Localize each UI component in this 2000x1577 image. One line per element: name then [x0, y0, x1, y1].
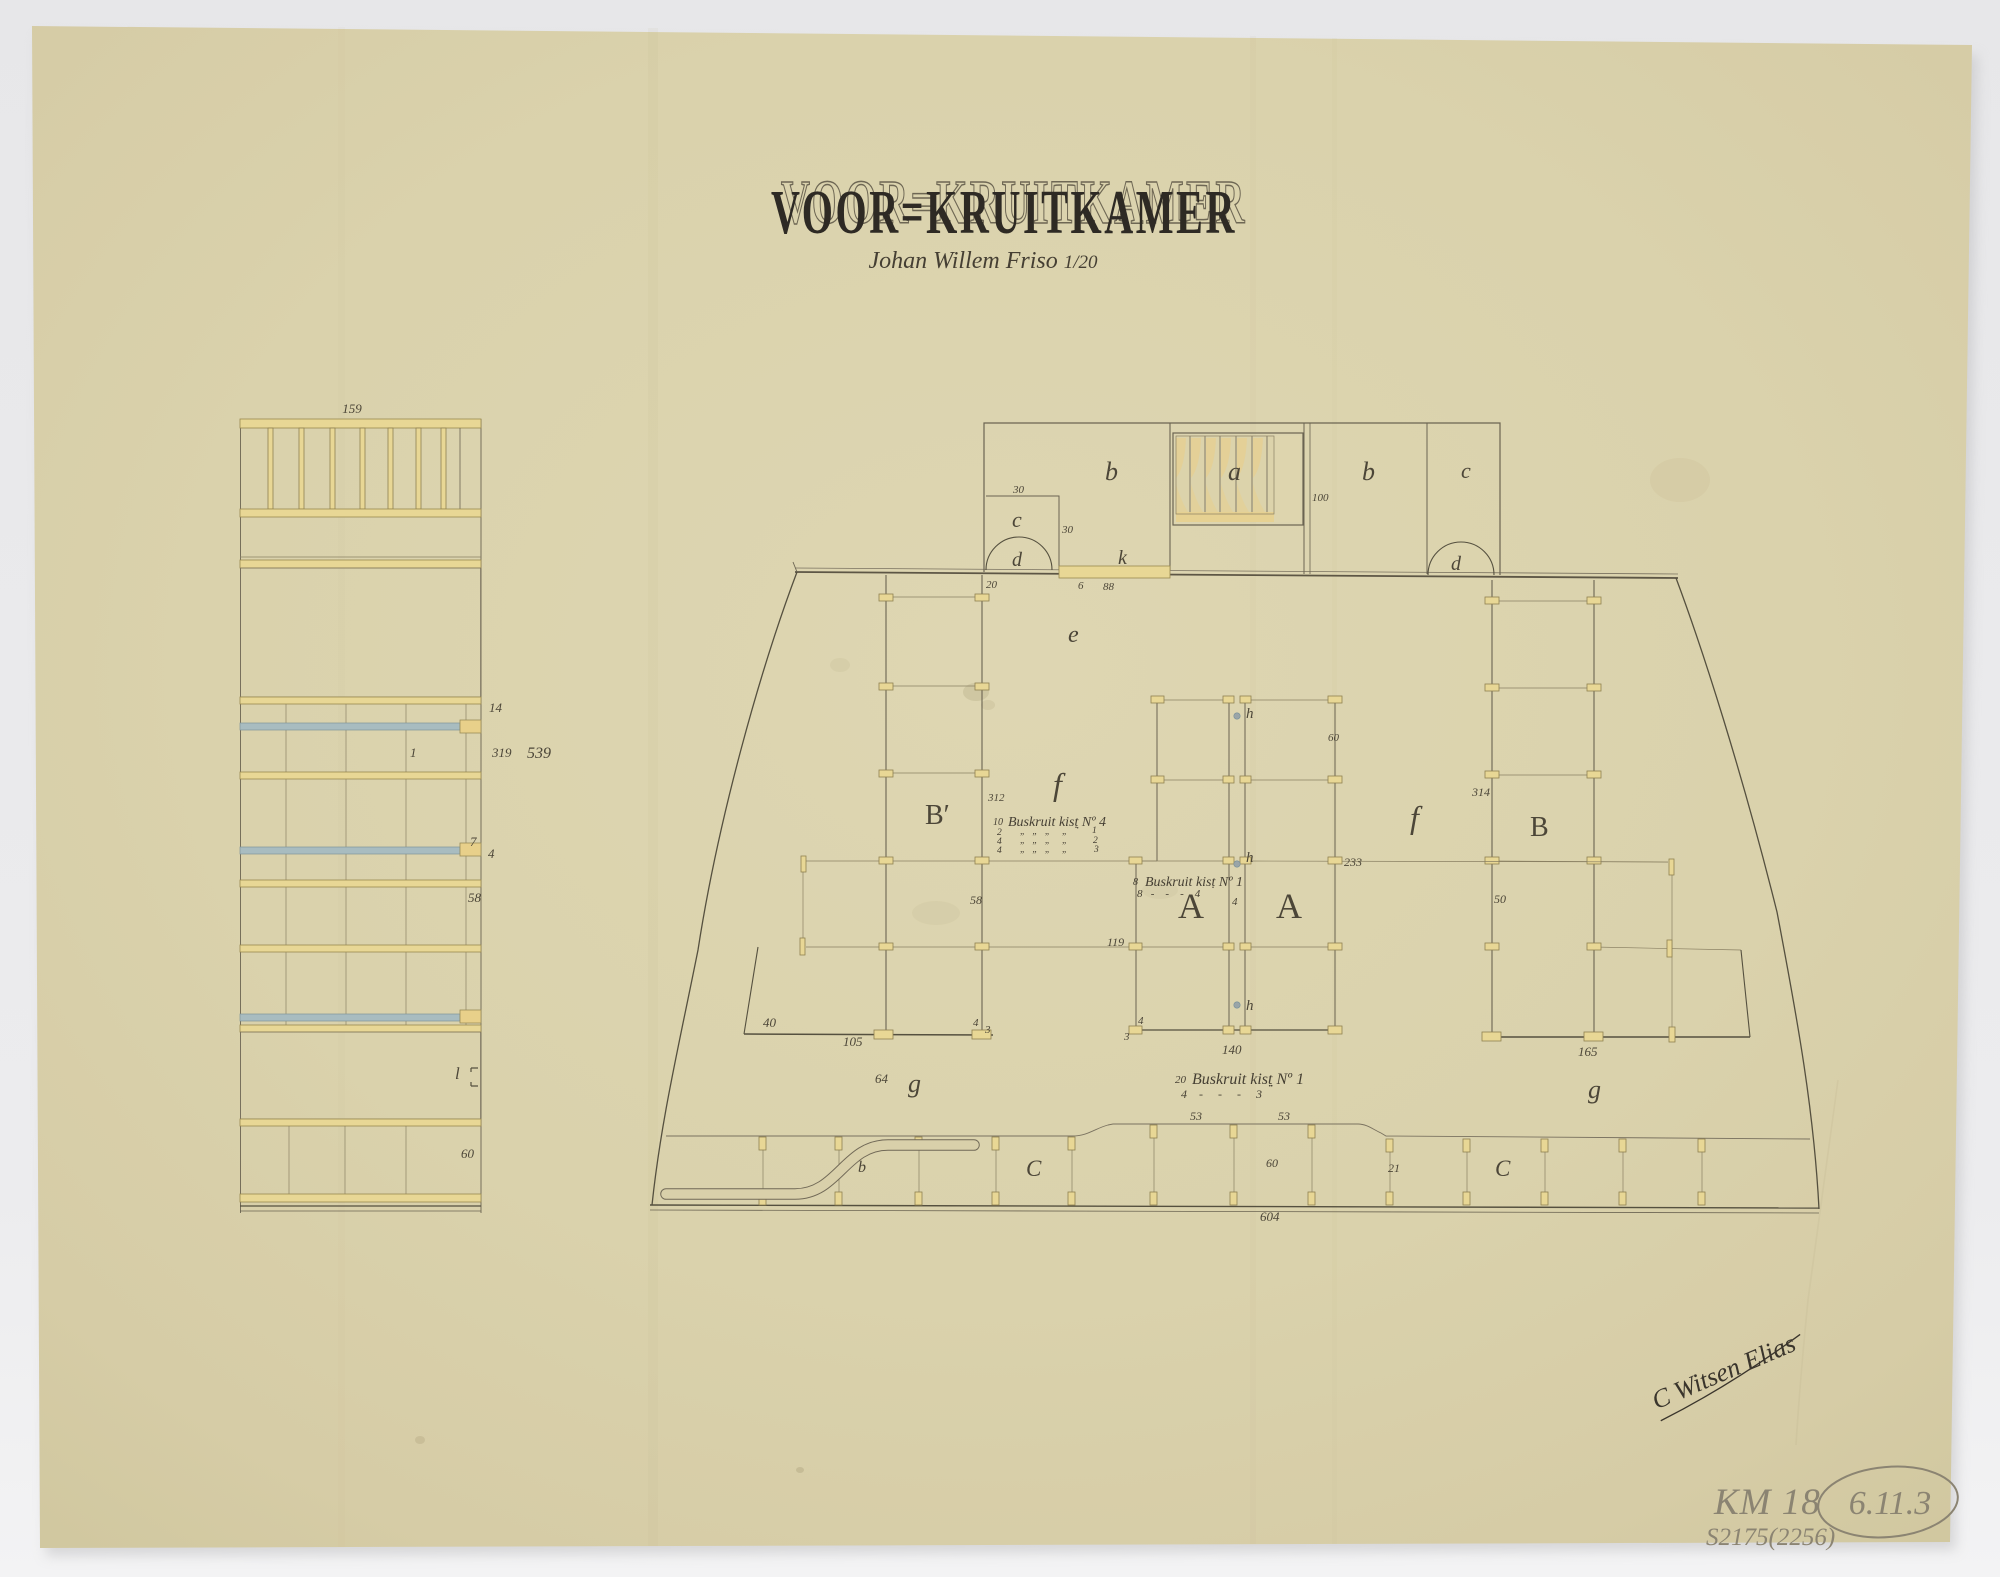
svg-text:g: g [1588, 1075, 1601, 1104]
svg-text:53: 53 [1278, 1109, 1290, 1123]
svg-text:8: 8 [1133, 877, 1138, 888]
svg-text:30: 30 [1061, 524, 1074, 536]
svg-text:6.11.3: 6.11.3 [1849, 1485, 1931, 1522]
svg-text:30: 30 [1012, 484, 1025, 496]
svg-text:1: 1 [410, 745, 417, 760]
svg-text:64: 64 [875, 1071, 889, 1086]
svg-text:314: 314 [1471, 785, 1490, 799]
svg-text:60: 60 [461, 1146, 475, 1161]
svg-text:Buskruit kisṭ̣ Nº 1: Buskruit kisṭ̣ Nº 1 [1192, 1071, 1304, 1088]
svg-text:60: 60 [1266, 1156, 1278, 1170]
svg-text:3: 3 [984, 1024, 991, 1036]
svg-text:Johan Willem Friso 1/20: Johan Willem Friso 1/20 [868, 248, 1098, 274]
svg-text:233: 233 [1344, 855, 1362, 869]
svg-text:58: 58 [468, 890, 482, 905]
svg-text:604: 604 [1260, 1209, 1280, 1224]
svg-text:14: 14 [489, 700, 503, 715]
svg-text:100: 100 [1312, 492, 1329, 504]
svg-text:d: d [1012, 549, 1023, 571]
svg-text:B′: B′ [925, 800, 950, 831]
svg-text:c: c [1461, 458, 1471, 483]
svg-text:KM 18: KM 18 [1713, 1482, 1821, 1523]
svg-text:k: k [1118, 547, 1128, 569]
svg-text:40: 40 [763, 1015, 777, 1030]
svg-text:„ „ „ „: „ „ „ „ [1020, 845, 1067, 855]
svg-text:20: 20 [986, 579, 998, 591]
svg-text:312: 312 [987, 792, 1005, 804]
svg-text:3: 3 [1093, 845, 1099, 855]
svg-text:58: 58 [970, 893, 982, 907]
svg-text:539: 539 [527, 745, 551, 762]
svg-text:4: 4 [973, 1017, 979, 1029]
svg-text:a: a [1228, 457, 1241, 486]
svg-text:140: 140 [1222, 1042, 1242, 1057]
svg-text:53: 53 [1190, 1109, 1202, 1123]
svg-text:88: 88 [1103, 581, 1115, 593]
svg-text:6: 6 [1078, 580, 1084, 592]
svg-text:8 - - - 4: 8 - - - 4 [1137, 888, 1201, 900]
svg-text:VOOR=KRUITKAMER: VOOR=KRUITKAMER [771, 179, 1237, 247]
svg-text:3: 3 [1123, 1031, 1130, 1043]
svg-text:319: 319 [491, 745, 512, 760]
svg-text:20: 20 [1175, 1074, 1187, 1086]
svg-text:21: 21 [1388, 1161, 1400, 1175]
svg-text:4: 4 [997, 846, 1002, 856]
svg-text:C: C [1026, 1156, 1042, 1181]
svg-text:b: b [1362, 457, 1375, 486]
svg-text:4 - - - 3: 4 - - - 3 [1181, 1087, 1262, 1101]
svg-text:g: g [908, 1069, 921, 1098]
svg-text:A: A [1276, 886, 1302, 926]
svg-text:b: b [1105, 457, 1118, 486]
svg-text:105: 105 [843, 1034, 863, 1049]
svg-text:159: 159 [342, 401, 362, 416]
svg-text:h: h [1246, 706, 1254, 722]
svg-text:l: l [455, 1064, 460, 1083]
svg-text:S2175(2256): S2175(2256) [1706, 1524, 1835, 1551]
svg-text:4: 4 [1138, 1015, 1144, 1027]
svg-text:119: 119 [1107, 935, 1124, 949]
svg-text:4: 4 [1232, 896, 1238, 908]
svg-text:60: 60 [1328, 732, 1340, 744]
svg-text:50: 50 [1494, 892, 1506, 906]
svg-text:7: 7 [470, 834, 477, 849]
svg-text:e: e [1068, 622, 1079, 648]
svg-text:165: 165 [1578, 1044, 1598, 1059]
svg-text:4: 4 [488, 846, 495, 861]
svg-text:b: b [858, 1159, 866, 1176]
svg-text:c: c [1012, 507, 1022, 532]
svg-text:d: d [1451, 553, 1462, 575]
svg-text:C: C [1495, 1156, 1511, 1181]
svg-text:B: B [1530, 812, 1549, 843]
svg-text:1: 1 [1092, 826, 1097, 836]
svg-text:h: h [1246, 850, 1254, 866]
svg-text:10: 10 [993, 817, 1003, 828]
svg-text:h: h [1246, 998, 1254, 1014]
